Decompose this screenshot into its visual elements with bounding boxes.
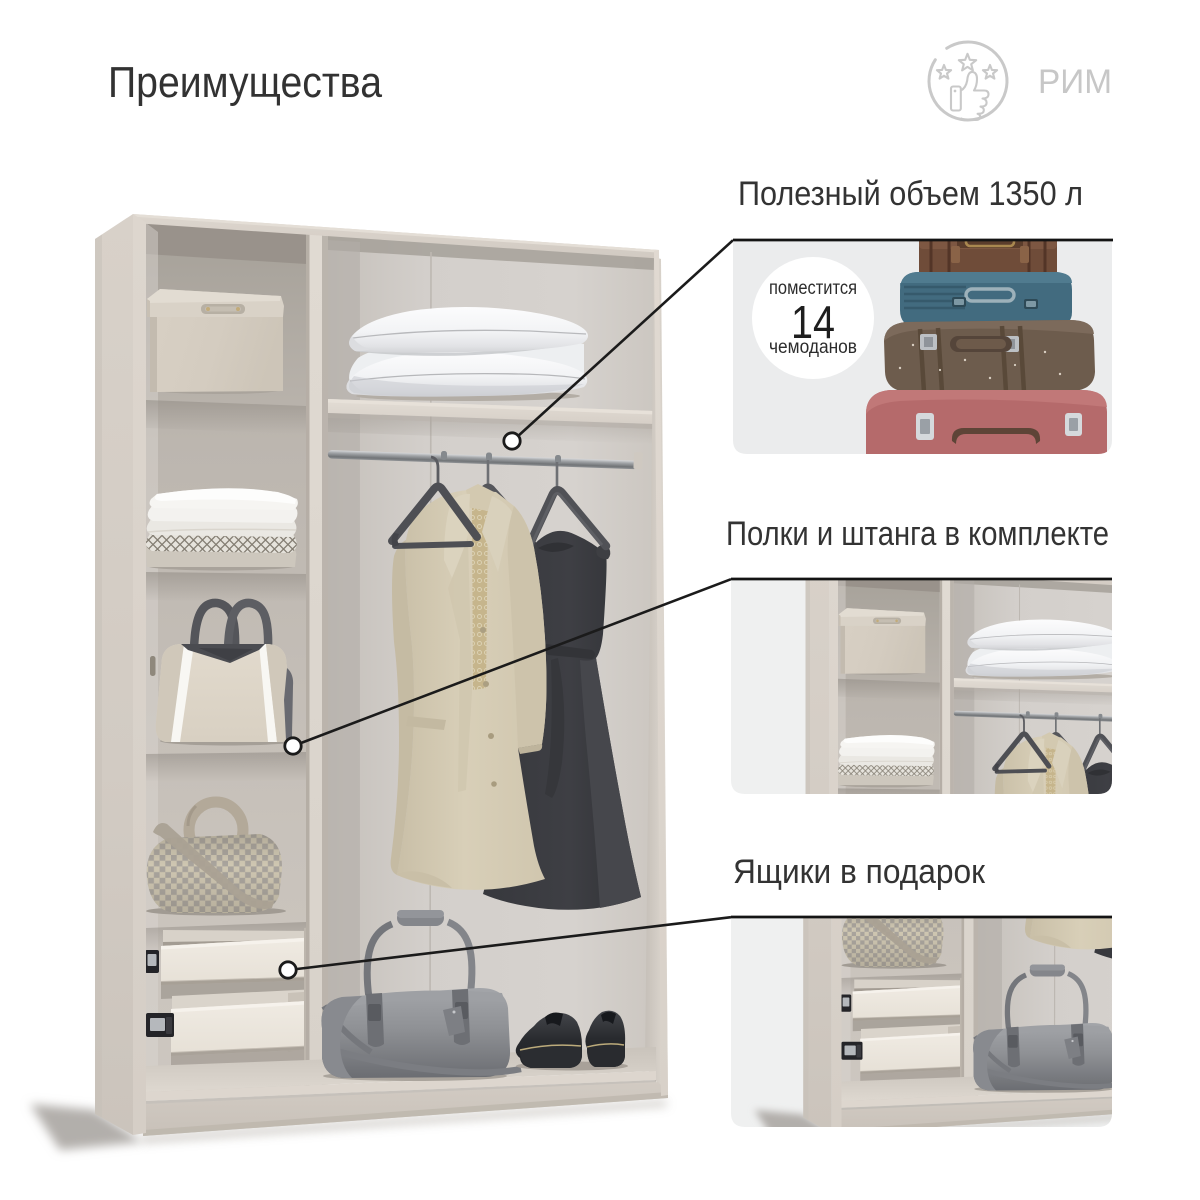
svg-text:Ящики в подарок: Ящики в подарок — [733, 853, 986, 891]
svg-text:Преимущества: Преимущества — [108, 58, 382, 107]
svg-text:РИМ: РИМ — [1038, 63, 1112, 101]
svg-text:Полки и штанга в комплекте: Полки и штанга в комплекте — [726, 515, 1109, 553]
svg-text:чемоданов: чемоданов — [769, 337, 857, 358]
svg-text:Полезный объем 1350 л: Полезный объем 1350 л — [738, 175, 1083, 213]
